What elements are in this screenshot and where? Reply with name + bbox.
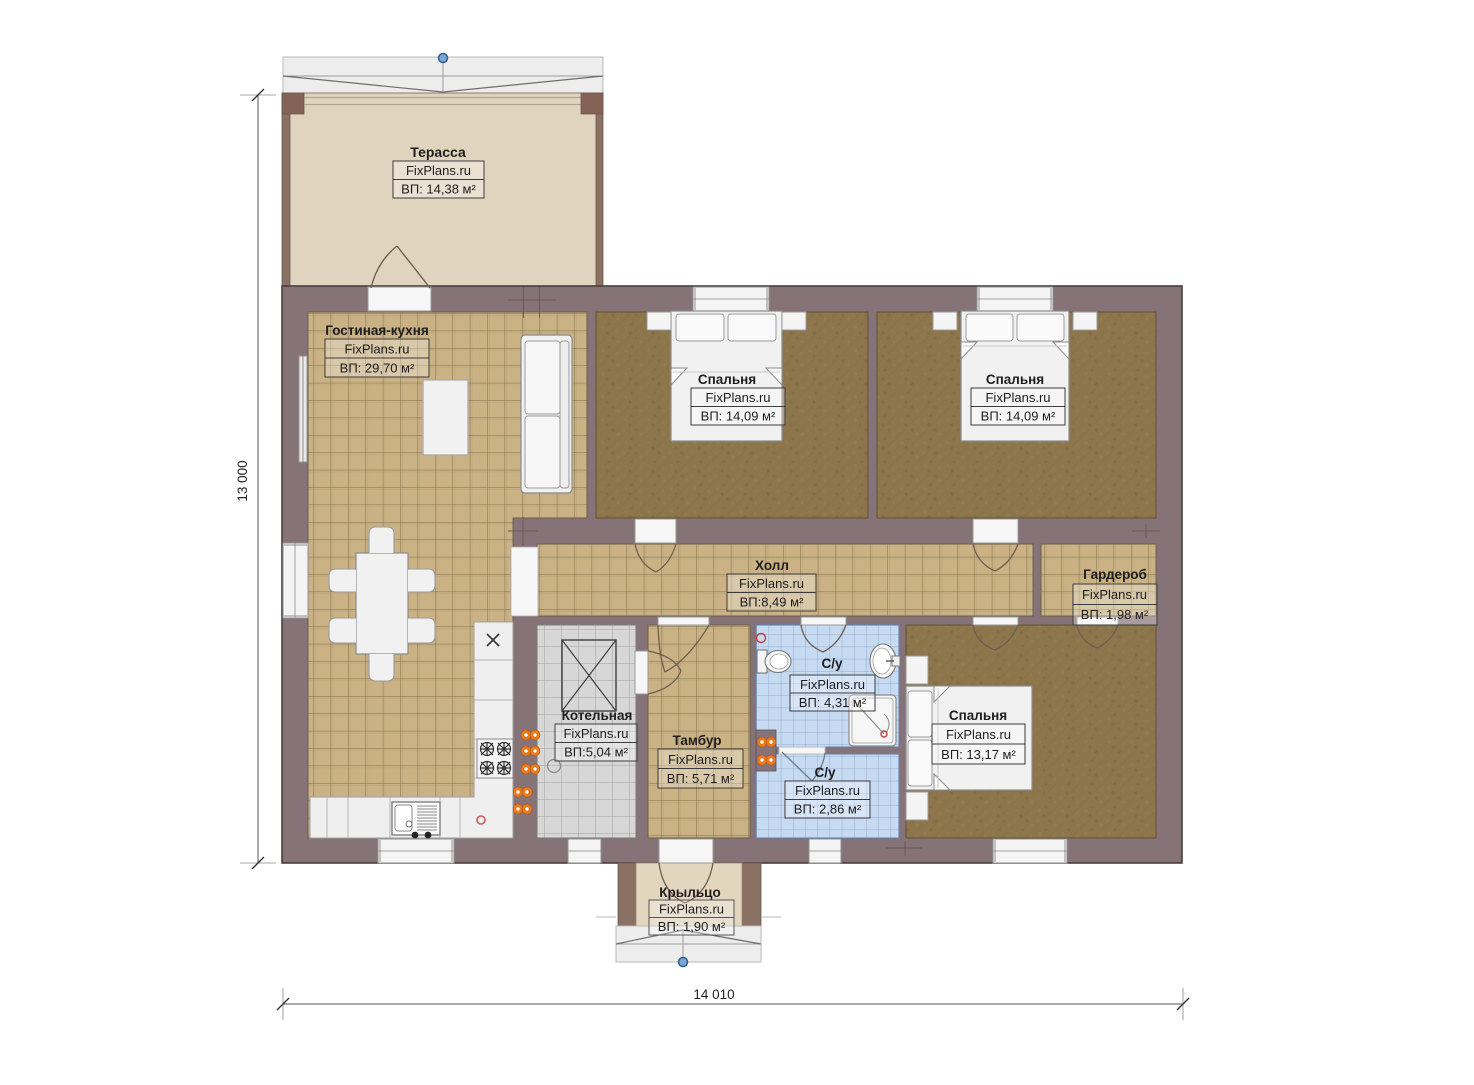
svg-text:ВП: 14,38 м²: ВП: 14,38 м²: [401, 182, 476, 197]
svg-text:ВП:8,49 м²: ВП:8,49 м²: [740, 595, 804, 610]
svg-text:FixPlans.ru: FixPlans.ru: [985, 390, 1050, 405]
svg-text:FixPlans.ru: FixPlans.ru: [344, 342, 409, 357]
svg-text:FixPlans.ru: FixPlans.ru: [406, 163, 471, 178]
svg-text:Спальня: Спальня: [986, 372, 1044, 387]
svg-text:ВП: 1,98 м²: ВП: 1,98 м²: [1081, 607, 1149, 622]
svg-text:FixPlans.ru: FixPlans.ru: [1082, 587, 1147, 602]
svg-text:ВП: 4,31 м²: ВП: 4,31 м²: [799, 695, 867, 710]
svg-text:ВП: 5,71 м²: ВП: 5,71 м²: [667, 771, 735, 786]
svg-text:13 000: 13 000: [235, 460, 250, 501]
svg-text:FixPlans.ru: FixPlans.ru: [659, 902, 724, 917]
svg-text:Терасса: Терасса: [410, 144, 466, 160]
svg-text:Гардероб: Гардероб: [1083, 567, 1147, 582]
svg-text:ВП: 29,70 м²: ВП: 29,70 м²: [340, 361, 415, 376]
svg-text:FixPlans.ru: FixPlans.ru: [795, 783, 860, 798]
svg-text:FixPlans.ru: FixPlans.ru: [705, 390, 770, 405]
svg-text:Котельная: Котельная: [562, 708, 633, 723]
svg-text:ВП: 14,09 м²: ВП: 14,09 м²: [981, 409, 1056, 424]
svg-text:ВП: 13,17 м²: ВП: 13,17 м²: [941, 747, 1016, 762]
svg-text:С/у: С/у: [821, 656, 843, 671]
svg-text:FixPlans.ru: FixPlans.ru: [668, 752, 733, 767]
svg-text:FixPlans.ru: FixPlans.ru: [739, 576, 804, 591]
svg-text:FixPlans.ru: FixPlans.ru: [946, 727, 1011, 742]
svg-text:FixPlans.ru: FixPlans.ru: [563, 726, 628, 741]
svg-text:FixPlans.ru: FixPlans.ru: [800, 677, 865, 692]
svg-text:С/у: С/у: [814, 765, 836, 780]
svg-text:Тамбур: Тамбур: [673, 733, 722, 748]
svg-text:ВП: 2,86 м²: ВП: 2,86 м²: [794, 802, 862, 817]
svg-text:14 010: 14 010: [693, 987, 734, 1002]
svg-text:Холл: Холл: [755, 558, 789, 573]
svg-text:Гостиная-кухня: Гостиная-кухня: [325, 323, 428, 338]
svg-text:Крыльцо: Крыльцо: [659, 885, 720, 900]
svg-text:ВП: 14,09 м²: ВП: 14,09 м²: [701, 409, 776, 424]
svg-text:Спальня: Спальня: [949, 708, 1007, 723]
svg-text:ВП: 1,90 м²: ВП: 1,90 м²: [658, 919, 726, 934]
svg-text:ВП:5,04 м²: ВП:5,04 м²: [564, 745, 628, 760]
svg-text:Спальня: Спальня: [698, 372, 756, 387]
